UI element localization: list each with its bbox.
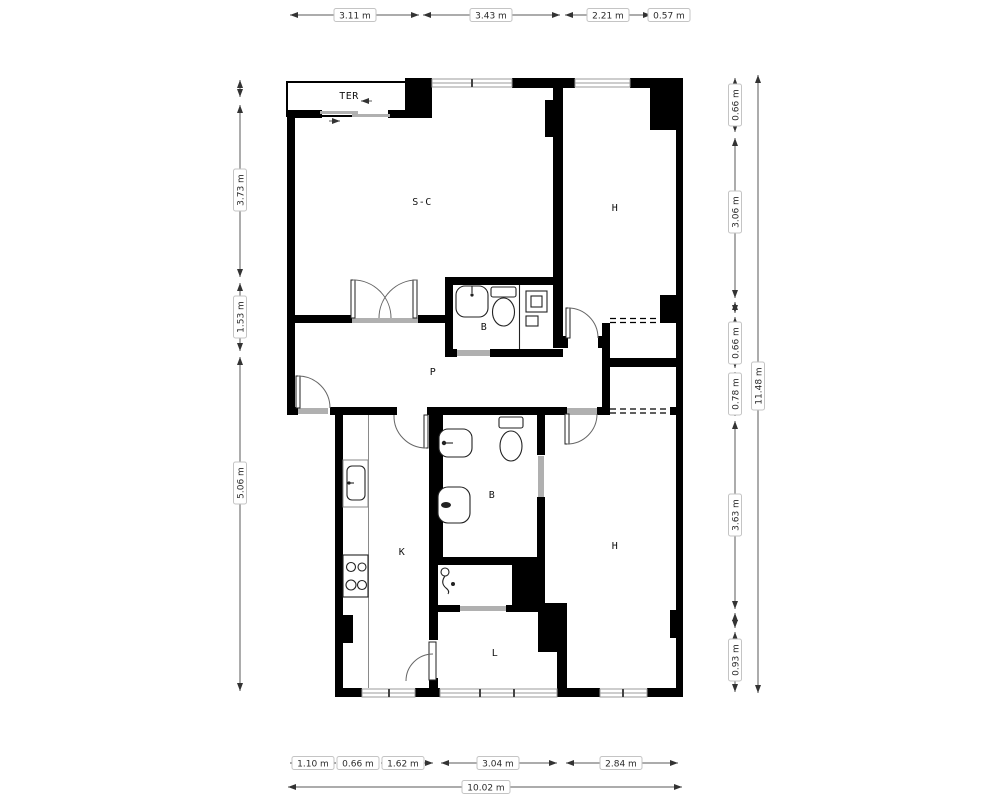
dim-right-5: 0.93 m (732, 644, 742, 676)
floorplan-canvas: TER S-C H B P K B H L 3.11 m 3.43 m 2.21… (0, 0, 1000, 800)
dimensions-g: 0.66 m (729, 322, 742, 364)
wall-block-laundry-e (538, 603, 567, 652)
dimensions-g: 3.06 m (729, 191, 742, 233)
tap-laundry-nook-path (443, 576, 449, 594)
dimensions-g: 0.66 m (729, 84, 742, 126)
door-arc-kitchen (394, 415, 426, 448)
dim-right-2: 0.66 m (732, 327, 742, 359)
windows-rect (479, 689, 481, 697)
wall-bottom-1 (335, 688, 362, 697)
cabinet-bath-top (526, 316, 538, 326)
toilet-tank-bath-top (491, 287, 516, 297)
windows-rect (471, 79, 473, 87)
terrace-slider-panel2 (352, 114, 390, 117)
door-leaf-laundry (429, 642, 436, 680)
wall-left (287, 110, 295, 415)
wall-terrace-bottom-right (388, 110, 420, 118)
door-leaf-living-l (351, 280, 355, 318)
wall-bottom-3 (557, 688, 600, 697)
door-leaf-living-r (413, 280, 417, 318)
wall-bottom-4 (647, 688, 683, 697)
threshold-laundry (460, 606, 506, 611)
threshold-entrance (298, 408, 328, 414)
wall-sc-hall-left (295, 315, 352, 323)
dim-bottom-3: 3.04 m (482, 760, 514, 770)
door-arc-entrance (298, 376, 330, 408)
wall-laundry-bedroom (557, 652, 567, 688)
toilet-bowl-bath-bottom (500, 431, 522, 461)
dim-bottom-0: 1.10 m (297, 760, 329, 770)
door-leaf-kitchen (424, 415, 428, 448)
tap-laundry-nook-circle (441, 568, 449, 576)
wall-bath-top-s2 (490, 349, 563, 357)
door-arc-living-l (353, 280, 391, 318)
wall-kitchen-bath (429, 408, 443, 565)
fixtures-ellipse (441, 502, 451, 508)
floorplan-page: TER S-C H B P K B H L 3.11 m 3.43 m 2.21… (0, 0, 1000, 800)
wall-bath2-e2 (537, 497, 545, 603)
room-label-laundry: L (492, 648, 499, 659)
dim-left-1: 1.53 m (237, 301, 247, 333)
dimensions-g: 3.63 m (729, 494, 742, 536)
room-label-living-dining: S-C (412, 197, 432, 208)
dim-right-4: 3.63 m (732, 499, 742, 531)
dim-top-2: 2.21 m (592, 12, 624, 22)
door-leaf-bedroom-top (566, 308, 570, 338)
wall-bath2-e1 (537, 408, 545, 455)
dimensions-g: 0.78 m (729, 373, 742, 415)
room-label-hallway: P (430, 367, 437, 378)
dim-bottom-2: 1.62 m (387, 760, 419, 770)
tap-laundry-nook-circle (451, 582, 455, 586)
threshold-bath-top (457, 350, 490, 356)
room-label-bedroom-bottom: H (612, 541, 619, 552)
wall-kitchen-pilaster (343, 615, 353, 643)
door-leaf-bedroom-bottom (565, 414, 569, 444)
threshold-bedroom-bottom (567, 408, 597, 415)
room-label-kitchen: K (399, 547, 406, 558)
door-arc-bedroom-bottom (567, 414, 597, 444)
fixtures-circle (442, 441, 446, 445)
wall-closet-w (602, 323, 610, 415)
dim-right-0: 0.66 m (732, 89, 742, 121)
dimensions-g: 1.53 m (234, 296, 247, 338)
dim-right-1: 3.06 m (732, 196, 742, 228)
wall-top-right (630, 78, 650, 88)
dim-left-0: 3.73 m (237, 174, 247, 206)
windows-rect (513, 689, 515, 697)
fixtures-rect (531, 296, 542, 307)
dimensions-g: 0.93 m (729, 639, 742, 681)
dimensions-g: 5.06 m (234, 462, 247, 504)
wall-sc-hall-right (418, 315, 446, 323)
wall-right (676, 88, 683, 697)
wall-top-mid (512, 78, 575, 88)
walls (287, 78, 683, 697)
wall-hall-s3 (427, 407, 567, 415)
room-labels: TER S-C H B P K B H L (339, 91, 618, 659)
wall-pilaster-bottomright (670, 610, 683, 638)
room-label-bathroom-top: B (481, 322, 488, 333)
room-label-terrace: TER (339, 91, 359, 102)
toilet-bowl-bath-top (493, 298, 515, 326)
dim-top-1: 3.43 m (475, 12, 507, 22)
wall-laundry-n2 (506, 605, 512, 612)
wall-bath-top-n (445, 277, 563, 285)
dimensions-g: 11.48 m (752, 362, 765, 410)
threshold-living-double-door (352, 318, 418, 323)
terrace-slider-panel1 (320, 111, 358, 114)
room-label-bathroom-bottom: B (489, 490, 496, 501)
wall-bath2-s (437, 557, 512, 565)
tap-laundry-nook (441, 568, 455, 594)
dim-right-total: 11.48 m (755, 367, 765, 404)
dim-bottom-1: 0.66 m (342, 760, 374, 770)
wall-laundry-n1 (437, 605, 460, 612)
door-arc-bedroom-top (568, 308, 598, 338)
wall-laundry-w1 (429, 565, 438, 640)
toilet-tank-bath-bottom (499, 417, 523, 428)
wall-closet-divider (610, 358, 683, 367)
threshold-bath-bottom-slider (538, 456, 544, 497)
wall-block-bath2-se (512, 557, 538, 612)
dimensions-g: 3.73 m (234, 169, 247, 211)
wall-kitchen-w (335, 408, 343, 697)
dim-bottom-total: 10.02 m (467, 784, 504, 794)
door-leaf-entrance (296, 376, 300, 408)
wall-bath-top-w (445, 285, 453, 357)
wall-bottom-2 (415, 688, 440, 697)
dim-right-3: 0.78 m (732, 378, 742, 410)
dim-top-0: 3.11 m (339, 12, 371, 22)
fixtures-circle (347, 481, 350, 484)
wall-block-right-mid (660, 295, 683, 323)
wall-bath-top-s1 (445, 349, 457, 357)
dim-top-3: 0.57 m (653, 12, 685, 22)
dimensions: 3.11 m 3.43 m 2.21 m 0.57 m 3.73 m 1.53 … (234, 9, 765, 794)
windows-rect (388, 689, 390, 697)
room-label-bedroom-top: H (612, 203, 619, 214)
door-arc-living-r (379, 280, 417, 318)
wall-closet-jamb (670, 407, 676, 415)
kitchen-stove (343, 555, 368, 597)
wall-hall-s4 (597, 407, 602, 415)
wall-terrace-bottom-left (287, 110, 322, 118)
windows (320, 79, 647, 697)
windows-rect (622, 689, 624, 697)
dim-bottom-4: 2.84 m (605, 760, 637, 770)
dim-left-2: 5.06 m (237, 467, 247, 499)
wall-pilaster-top (545, 100, 563, 137)
fixtures-circle (470, 293, 473, 296)
